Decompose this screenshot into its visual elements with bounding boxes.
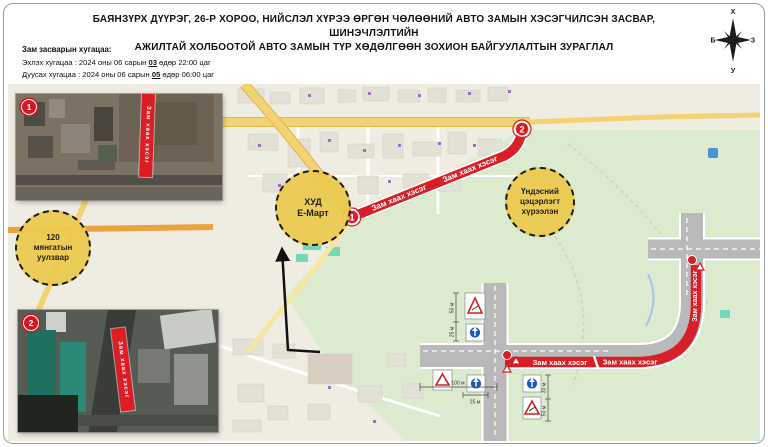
road	[78, 415, 218, 426]
zone-120k-intersection: 120 мянгатын уулзвар	[15, 210, 91, 286]
mandatory-direction-sign	[523, 375, 541, 392]
mandatory-direction-sign	[466, 324, 484, 341]
closure-label: Зам хаах хэсэг	[143, 106, 151, 164]
start-day: 03	[148, 58, 156, 67]
building	[28, 136, 53, 157]
inset2-marker: 2	[23, 315, 39, 331]
compass-south-label: У	[731, 68, 736, 75]
schedule-heading: Зам засварын хугацаа:	[22, 44, 214, 56]
zone-emart: ХУД Е-Март	[275, 170, 351, 246]
building	[94, 107, 113, 141]
dim-label: 50 м	[450, 302, 456, 313]
map-poi	[708, 148, 718, 158]
building	[174, 354, 208, 405]
road	[16, 175, 222, 186]
compass-east-label: З	[751, 38, 756, 45]
closure-label: Зам хаах хэсэг	[603, 358, 658, 367]
title-line-1: БАЯНЗҮРХ ДҮҮРЭГ, 26-Р ХОРОО, НИЙСЛЭЛ ХҮР…	[52, 13, 696, 41]
dim-label: 30 м	[542, 382, 548, 393]
dim-label: 100 м	[451, 381, 465, 387]
building-row	[16, 187, 222, 200]
inset1-marker: 1	[21, 99, 37, 115]
mandatory-direction-sign	[467, 375, 485, 392]
schedule-end: Дуусах хугацаа : 2024 оны 06 сарын 05 өд…	[22, 69, 214, 81]
zone-national-park: Үндэсний цэцэрлэгт хүрээлэн	[505, 167, 575, 237]
roadwork-warning-sign	[465, 293, 485, 319]
aerial-inset-2: Зам хаах хэсэг 2	[18, 310, 218, 432]
parking-lot	[138, 349, 170, 383]
schedule-start: Эхлэх хугацаа : 2024 оны 06 сарын 03 өдө…	[22, 57, 214, 69]
white-building	[160, 310, 216, 350]
dim-label: 25 м	[470, 400, 481, 406]
dim-label: 50 м	[542, 405, 548, 416]
traffic-plan-poster: БАЯНЗҮРХ ДҮҮРЭГ, 26-Р ХОРОО, НИЙСЛЭЛ ХҮР…	[0, 0, 768, 447]
closed-road-band: Зам хаах хэсэг	[139, 94, 155, 177]
building	[61, 124, 90, 154]
roadwork-warning-sign	[523, 397, 541, 419]
repair-schedule: Зам засварын хугацаа: Эхлэх хугацаа : 20…	[22, 44, 214, 81]
dim-label: 25 м	[450, 326, 456, 337]
compass-rose-icon: Х У З Б	[710, 5, 756, 80]
compass-north-label: Х	[731, 9, 736, 16]
building	[78, 160, 115, 171]
closure-point-marker-2: 2	[513, 120, 531, 138]
compass-west-label: Б	[710, 38, 715, 45]
building	[49, 99, 65, 118]
closure-label: Зам хаах хэсэг	[533, 358, 588, 367]
shadow-area	[18, 395, 78, 432]
closure-label: Зам хаах хэсэг	[116, 341, 129, 399]
satellite-inset-1: Зам хаах хэсэг 1	[16, 94, 222, 200]
closure-label: Зам хаах хэсэг	[692, 270, 699, 321]
city-map: Зам хаах хэсэг Зам хаах хэсэг Зам хаах х…	[8, 84, 760, 441]
svg-text:2: 2	[519, 125, 524, 135]
